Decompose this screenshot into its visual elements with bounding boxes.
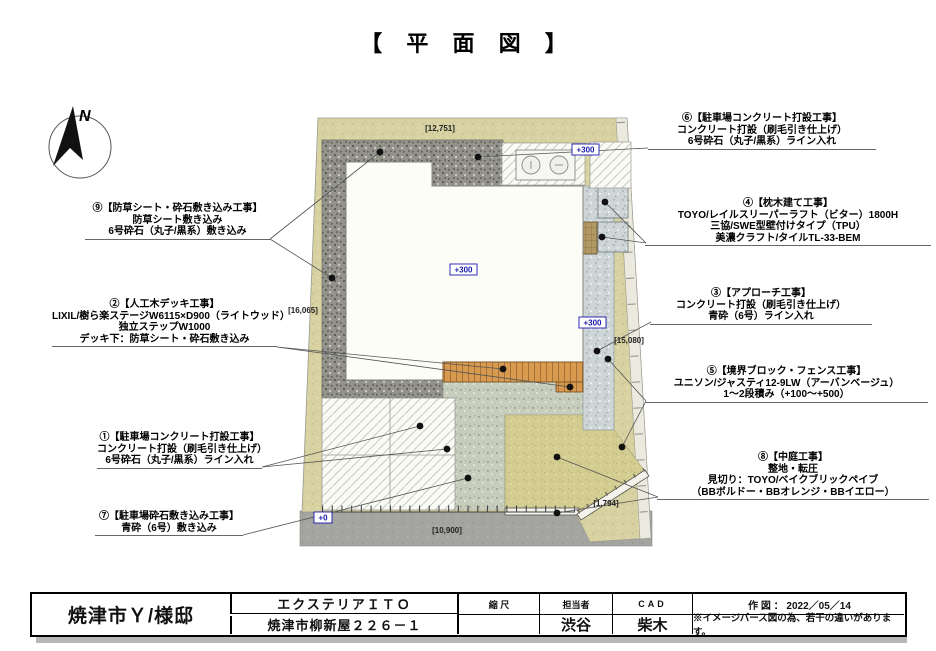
callout-4-line: 三協/SWE型壁付けタイプ（TPU）	[645, 221, 931, 233]
callout-4-line: 美濃クラフト/タイルTL-33-BEM	[645, 233, 931, 245]
callout-4: ④【枕木建て工事】 TOYO/レイルスリーパーラフト（ビター）1800H 三協/…	[645, 198, 931, 246]
callout-4-line: TOYO/レイルスリーパーラフト（ビター）1800H	[645, 210, 931, 222]
callout-8-line: 見切り：TOYO/ベイクブリックペイブ	[657, 475, 929, 487]
callout-2-line: デッキ下：防草シート・砕石敷き込み	[52, 334, 277, 346]
callout-9: ⑨【防草シート・砕石敷き込み工事】 防草シート敷き込み 6号砕石（丸子/黒系）敷…	[85, 203, 270, 240]
callout-7-line: 青砕（6号）敷き込み	[95, 523, 243, 535]
callout-5-line: 1～2段積み（+100～+500）	[645, 389, 928, 401]
compass-icon: N	[49, 106, 111, 178]
callout-8-line: （BBボルドー・BBオレンジ・BBイエロー）	[657, 487, 929, 499]
callout-9-line: ⑨【防草シート・砕石敷き込み工事】	[85, 203, 270, 215]
manager-value: 渋谷	[539, 614, 612, 634]
callout-5-line: ユニソン/ジャスティ12-9LW（アーバンベージュ）	[645, 378, 928, 390]
page-title: 【 平 面 図 】	[0, 26, 936, 58]
company-name: エクステリアＩＴＯ	[230, 594, 457, 614]
company-address: 焼津市柳新屋２２６－１	[230, 616, 457, 635]
callout-6-line: コンクリート打設（刷毛引き仕上げ）	[648, 125, 876, 137]
callout-3-line: コンクリート打設（刷毛引き仕上げ）	[650, 300, 872, 312]
callout-4-line: ④【枕木建て工事】	[645, 198, 931, 210]
scale-label: 縮 尺	[459, 594, 539, 614]
compass-north-label: N	[79, 108, 91, 125]
dim-left: [16,065]	[288, 306, 318, 315]
dim-bottom: [10,900]	[432, 526, 462, 535]
callout-9-line: 防草シート敷き込み	[85, 215, 270, 227]
callout-2-line: ②【人工木デッキ工事】	[52, 299, 277, 311]
callout-2: ②【人工木デッキ工事】 LIXIL/樹ら楽ステージW6115×D900（ライトウ…	[52, 299, 277, 347]
callout-3: ③【アプローチ工事】 コンクリート打設（刷毛引き仕上げ） 青砕（6号）ライン入れ	[650, 288, 872, 325]
dim-top: [12,751]	[425, 124, 455, 133]
callout-6: ⑥【駐車場コンクリート打設工事】 コンクリート打設（刷毛引き仕上げ） 6号砕石（…	[648, 113, 876, 150]
callout-8: ⑧【中庭工事】 整地・転圧 見切り：TOYO/ベイクブリックペイブ （BBボルド…	[657, 452, 929, 500]
callout-8-line: 整地・転圧	[657, 464, 929, 476]
drawing-sheet: [12,751] [16,065] [15,080] [10,900] [1,7…	[0, 0, 936, 651]
callout-7-line: ⑦【駐車場砕石敷き込み工事】	[95, 511, 243, 523]
callout-3-line: 青砕（6号）ライン入れ	[650, 311, 872, 323]
callout-1-line: 6号砕石（丸子/黒系）ライン入れ	[97, 455, 262, 467]
callout-6-line: 6号砕石（丸子/黒系）ライン入れ	[648, 136, 876, 148]
note-text: ※イメージパース図の為、若干の違いがあります。	[692, 614, 906, 634]
callout-1: ①【駐車場コンクリート打設工事】 コンクリート打設（刷毛引き仕上げ） 6号砕石（…	[97, 432, 262, 469]
scale-value	[459, 614, 539, 634]
callout-1-line: コンクリート打設（刷毛引き仕上げ）	[97, 444, 262, 456]
elevation-top: +300	[576, 146, 595, 155]
concrete-parking-stalls	[322, 398, 455, 510]
callout-1-line: ①【駐車場コンクリート打設工事】	[97, 432, 262, 444]
callout-2-line: 独立ステップW1000	[52, 322, 277, 334]
callout-3-line: ③【アプローチ工事】	[650, 288, 872, 300]
callout-8-line: ⑧【中庭工事】	[657, 452, 929, 464]
elevation-side: +300	[583, 319, 602, 328]
callout-5: ⑤【境界ブロック・フェンス工事】 ユニソン/ジャスティ12-9LW（アーバンベー…	[645, 366, 928, 403]
dim-right: [15,080]	[614, 336, 644, 345]
elevation-center: +300	[454, 266, 473, 275]
cad-label: CAD	[612, 594, 692, 614]
title-block-divider	[457, 614, 904, 615]
callout-6-line: ⑥【駐車場コンクリート打設工事】	[648, 113, 876, 125]
callout-5-line: ⑤【境界ブロック・フェンス工事】	[645, 366, 928, 378]
manager-label: 担当者	[539, 594, 612, 614]
dim-corner: [1,794]	[593, 499, 619, 508]
callout-7: ⑦【駐車場砕石敷き込み工事】 青砕（6号）敷き込み	[95, 511, 243, 536]
cad-value: 柴木	[612, 614, 692, 634]
project-name: 焼津市Ｙ/様邸	[32, 594, 230, 634]
callout-2-line: LIXIL/樹ら楽ステージW6115×D900（ライトウッド）	[52, 311, 277, 323]
elevation-zero: +0	[318, 514, 328, 523]
concrete-parking-top	[502, 142, 631, 188]
callout-9-line: 6号砕石（丸子/黒系）敷き込み	[85, 226, 270, 238]
title-block: 焼津市Ｙ/様邸 エクステリアＩＴＯ 焼津市柳新屋２２６－１ 縮 尺 担当者 CA…	[30, 592, 907, 637]
title-block-shadow	[36, 637, 907, 643]
